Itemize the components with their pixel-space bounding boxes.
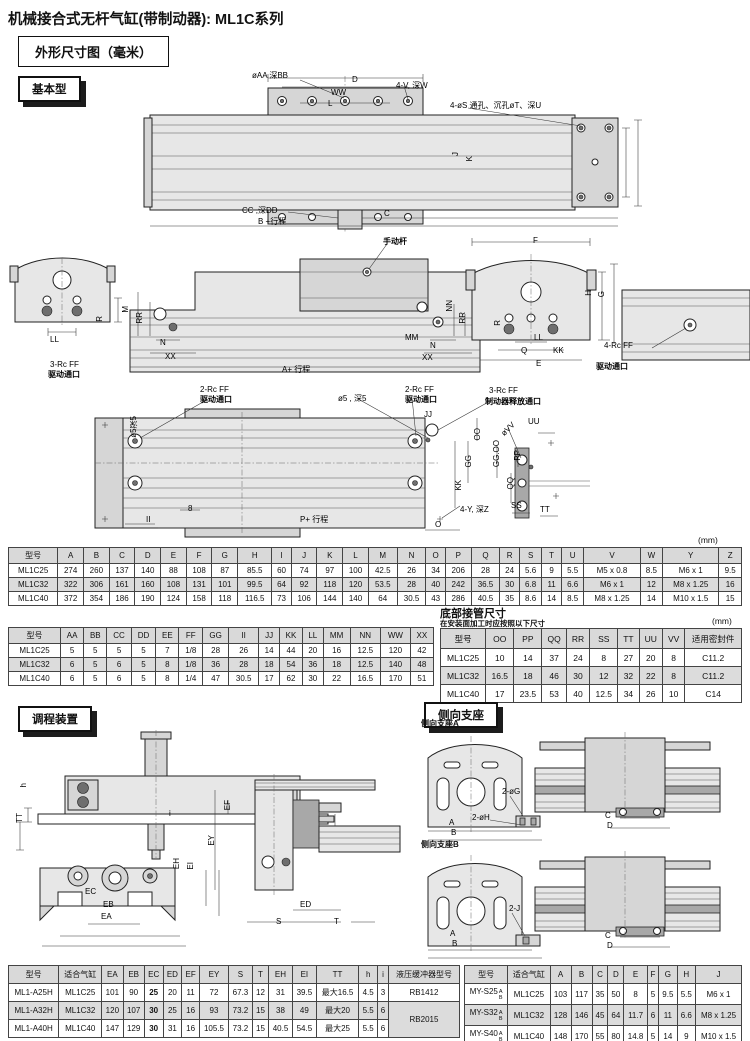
side-support-dimensions-table: 型号适合气缸ABCDEFGHJMY-S25ABML1C2510311735508…	[464, 965, 742, 1041]
dim-label-ssa-d: D	[607, 822, 613, 830]
table-cell: 14	[514, 649, 542, 667]
dim-label-aa-bb: øAA 深BB	[252, 72, 288, 80]
column-header: D	[135, 548, 161, 564]
column-header: EB	[123, 966, 144, 984]
table-cell: M8 x 1.25	[663, 578, 719, 592]
table-cell: 51	[410, 672, 433, 686]
table-cell: C11.2	[685, 649, 742, 667]
table-cell: 108	[186, 564, 212, 578]
table-cell: 10	[662, 685, 684, 703]
table-cell: M8 x 1.25	[696, 1005, 742, 1026]
table-cell: ML1-A25H	[9, 984, 59, 1002]
header-row: 型号AABBCCDDEEFFGGIIJJKKLLMMNNWWXX	[9, 628, 434, 644]
dim-label-jj: JJ	[424, 411, 432, 419]
table-cell: 16	[182, 1020, 200, 1038]
table-cell: 186	[109, 592, 135, 606]
table-cell: 40	[566, 685, 589, 703]
table-cell: 16	[182, 1002, 200, 1020]
table-cell: 322	[58, 578, 84, 592]
table-cell: 5.5	[359, 1020, 378, 1038]
port-label-4rc: 4-Rc FF	[604, 342, 633, 350]
column-header: E	[161, 548, 187, 564]
table-cell: 14	[659, 1026, 677, 1041]
dim-label-rr-left: RR	[136, 312, 144, 324]
column-header: FF	[179, 628, 203, 644]
table-cell: 24	[500, 564, 519, 578]
dim-label-v-w: 4-V, 深W	[396, 82, 428, 90]
table-cell: 17	[486, 685, 514, 703]
table-cell: 74	[291, 564, 317, 578]
table-row: ML1C3216.51846301232228C11.2	[441, 667, 742, 685]
table-cell: 45	[592, 1005, 608, 1026]
table-cell: ML1C32	[9, 658, 61, 672]
table-cell: ML1-A40H	[9, 1020, 59, 1038]
table-cell: 46	[542, 667, 566, 685]
table-cell: ML1C25	[9, 644, 61, 658]
column-header: T	[252, 966, 268, 984]
dim-label-l: L	[328, 100, 332, 108]
dim-label-g: G	[598, 291, 606, 297]
column-header: SS	[590, 629, 618, 649]
table-cell: ML1C32	[59, 1002, 102, 1020]
table-cell: MY-S32AB	[465, 1005, 508, 1026]
catalog-page: 机械接合式无杆气缸(带制动器): ML1C系列 外形尺寸图（毫米） 基本型	[0, 0, 750, 1041]
dim-label-s-t-u: 4-øS 通孔、沉孔øT、深U	[450, 102, 541, 110]
dim-label-r-left: R	[96, 316, 104, 322]
table-cell: 88	[161, 564, 187, 578]
column-header: 型号	[441, 629, 486, 649]
side-support-drawing	[420, 728, 750, 960]
table-cell: 87	[212, 564, 238, 578]
basic-type-plan-view-drawing	[140, 68, 710, 238]
table-cell: 6	[107, 658, 131, 672]
dim-label-ec: EC	[85, 888, 96, 896]
column-header: OO	[486, 629, 514, 649]
dim-label-n-mid: N	[430, 342, 436, 350]
dim-label-2og: 2-øG	[502, 788, 520, 796]
table-cell: ML1C40	[9, 672, 61, 686]
table-cell: 12	[252, 984, 268, 1002]
table-cell: 16.5	[350, 672, 380, 686]
table-cell: 117	[571, 984, 592, 1005]
dim-label-2j: 2-J	[509, 905, 520, 913]
table-cell: 30	[144, 1002, 163, 1020]
table-cell: 99.5	[238, 578, 272, 592]
table-row: ML1-A25HML1C25101902520117267.3123139.5最…	[9, 984, 460, 1002]
table-row: ML1C40372354186190124158118116.573106144…	[9, 592, 742, 606]
column-header: C	[109, 548, 135, 564]
table-cell: 31	[163, 1020, 182, 1038]
header-row: 型号OOPPQQRRSSTTUUVV适用密封件	[441, 629, 742, 649]
table-cell: 5	[647, 984, 658, 1005]
column-header: W	[640, 548, 663, 564]
table-cell: 42.5	[368, 564, 397, 578]
table-cell: ML1C25	[441, 649, 486, 667]
table-cell: 120	[381, 644, 411, 658]
table-cell: ML1C32	[9, 578, 58, 592]
dim-label-adj-h: h	[20, 783, 28, 787]
column-header: EF	[182, 966, 200, 984]
table-cell: 137	[109, 564, 135, 578]
table-cell: 5	[84, 644, 107, 658]
table-cell: MY-S40AB	[465, 1026, 508, 1041]
dim-label-ei: EI	[187, 862, 195, 870]
column-header: 型号	[9, 966, 59, 984]
table-cell: 9.5	[659, 984, 677, 1005]
table-cell: 36	[303, 658, 324, 672]
column-header: PP	[514, 629, 542, 649]
header-row: 型号ABCDEFGHIJKLMNOPQRSTUVWYZ	[9, 548, 742, 564]
table-cell: 90	[123, 984, 144, 1002]
table-cell: M8 x 1.25	[584, 592, 640, 606]
header-row: 型号适合气缸ABCDEFGHJ	[465, 966, 742, 984]
table-cell: 64	[368, 592, 397, 606]
table-cell: 26	[228, 644, 258, 658]
column-header: A	[550, 966, 571, 984]
table-cell: 170	[571, 1026, 592, 1041]
table-cell: 17	[259, 672, 280, 686]
dim-label-ef: EF	[224, 800, 232, 810]
table-cell: 22	[323, 672, 350, 686]
tab-stroke-adjuster: 调程装置	[18, 706, 92, 732]
table-cell: 39.5	[292, 984, 316, 1002]
table-cell: M6 x 1	[696, 984, 742, 1005]
column-header: B	[571, 966, 592, 984]
table-cell: 6.6	[677, 1005, 695, 1026]
table-cell: ML1C25	[508, 984, 550, 1005]
table-cell: 28	[203, 644, 229, 658]
table-cell: 161	[109, 578, 135, 592]
dim-label-h: H	[585, 290, 593, 296]
table-cell: 5	[131, 658, 155, 672]
side-support-b-section	[428, 855, 542, 958]
basic-dimensions-table: 型号ABCDEFGHIJKLMNOPQRSTUVWYZML1C252742601…	[8, 547, 742, 606]
column-header: QQ	[542, 629, 566, 649]
table-cell: 30	[303, 672, 324, 686]
table-cell: 8	[662, 667, 684, 685]
dim-label-gg: GG	[465, 455, 473, 467]
column-header: TT	[316, 966, 358, 984]
table-cell: 158	[186, 592, 212, 606]
column-header: 适合气缸	[59, 966, 102, 984]
table-cell: 131	[186, 578, 212, 592]
column-header: E	[624, 966, 648, 984]
page-title: 机械接合式无杆气缸(带制动器): ML1C系列	[8, 8, 284, 29]
table-cell: 12	[640, 578, 663, 592]
port-label-2rc-right: 2-Rc FF	[405, 386, 434, 394]
dim-label-ssa-a: A	[449, 819, 454, 827]
table-cell: M6 x 1	[663, 564, 719, 578]
column-header: F	[186, 548, 212, 564]
table-row: ML1C25274260137140881088785.560749710042…	[9, 564, 742, 578]
column-header: B	[84, 548, 110, 564]
table-cell: 34	[618, 685, 639, 703]
column-header: I	[272, 548, 291, 564]
table-cell: 64	[272, 578, 291, 592]
table-cell: 40.5	[471, 592, 500, 606]
table-cell: 146	[571, 1005, 592, 1026]
column-header: JJ	[259, 628, 280, 644]
table-row: ML1C40656581/44730.51762302216.517051	[9, 672, 434, 686]
dim-label-mm: MM	[405, 334, 418, 342]
table-row: ML1C2510143724827208C11.2	[441, 649, 742, 667]
column-header: U	[561, 548, 584, 564]
table-cell: 40	[426, 578, 445, 592]
column-header: KK	[279, 628, 302, 644]
dim-label-rr-mid: RR	[459, 312, 467, 324]
table-cell: 54.5	[292, 1020, 316, 1038]
table-cell: 5.5	[677, 984, 695, 1005]
table-cell: 16.5	[486, 667, 514, 685]
dim-label-ssa-c: C	[605, 812, 611, 820]
table-row: MY-S32ABML1C32128146456411.76116.6M8 x 1…	[465, 1005, 742, 1026]
table-cell: 27	[618, 649, 639, 667]
table-cell: 16	[323, 644, 350, 658]
table-cell: ML1C32	[508, 1005, 550, 1026]
column-header: VV	[662, 629, 684, 649]
table-cell: ML1C40	[9, 592, 58, 606]
table-cell: 72	[199, 984, 228, 1002]
table-cell: 18	[259, 658, 280, 672]
table-cell: 20	[163, 984, 182, 1002]
column-header: S	[229, 966, 253, 984]
dim-label-f: F	[533, 237, 538, 245]
table-cell: 14	[640, 592, 663, 606]
table-cell: 15	[252, 1002, 268, 1020]
table-cell: 100	[343, 564, 369, 578]
column-header: ED	[163, 966, 182, 984]
table-cell: 170	[381, 672, 411, 686]
table-cell: 242	[445, 578, 471, 592]
table-cell: 43	[426, 592, 445, 606]
table-cell: 6	[378, 1020, 389, 1038]
column-header: H	[238, 548, 272, 564]
table-cell: 260	[84, 564, 110, 578]
table-cell: 42	[410, 644, 433, 658]
dim-label-nn: NN	[446, 300, 454, 312]
dim-label-e: E	[536, 360, 541, 368]
column-header: i	[378, 966, 389, 984]
dim-label-o: O	[435, 521, 441, 529]
table-row: ML1C401723.5534012.5342610C14	[441, 685, 742, 703]
table-cell: 67.3	[229, 984, 253, 1002]
dim-label-tt: TT	[540, 506, 550, 514]
table-cell: 8.5	[640, 564, 663, 578]
side-support-a-plan	[535, 732, 720, 828]
table-cell: 140	[381, 658, 411, 672]
table-cell: 14.8	[624, 1026, 648, 1041]
table-cell: 6	[647, 1005, 658, 1026]
table-cell: 64	[608, 1005, 624, 1026]
table-cell: 8	[590, 649, 618, 667]
dim-label-eh: EH	[173, 858, 181, 869]
unit-label-main: (mm)	[698, 535, 718, 545]
dim-label-r-mid: R	[494, 320, 502, 326]
table-cell: 28	[397, 578, 426, 592]
table-cell: 8	[662, 649, 684, 667]
column-header: N	[397, 548, 426, 564]
table-cell: 5	[647, 1026, 658, 1041]
table-cell: 5	[131, 672, 155, 686]
table-cell: 1/8	[179, 658, 203, 672]
table-row: ML1C25555571/828261444201612.512042	[9, 644, 434, 658]
table-cell: 6	[61, 672, 84, 686]
dim-label-cc-dd: CC ,深DD	[242, 207, 278, 215]
table-cell: 5	[84, 672, 107, 686]
table-cell: ML1C40	[508, 1026, 550, 1041]
dim-label-c: C	[384, 210, 390, 218]
column-header: UU	[639, 629, 662, 649]
table-cell: M5 x 0.8	[584, 564, 640, 578]
table-cell: 30	[500, 578, 519, 592]
column-header: 液压缓冲器型号	[389, 966, 460, 984]
table-cell: 44	[279, 644, 302, 658]
table-cell: 11	[659, 1005, 677, 1026]
table-cell: M10 x 1.5	[696, 1026, 742, 1041]
dim-label-adj-tt: TT	[16, 813, 24, 823]
table-cell: 30	[144, 1020, 163, 1038]
column-header: K	[317, 548, 343, 564]
table-cell: ML1C25	[9, 564, 58, 578]
table-cell: 1/8	[179, 644, 203, 658]
table-row: ML1C3232230616116010813110199.5649211812…	[9, 578, 742, 592]
table-cell: 55	[592, 1026, 608, 1041]
table-cell: 8.6	[519, 592, 542, 606]
dim-label-q: Q	[521, 347, 527, 355]
table-row: ML1-A32HML1C321201073025169373.2153849最大…	[9, 1002, 460, 1020]
table-cell: 5	[61, 644, 84, 658]
table-cell: 36.5	[471, 578, 500, 592]
bottom-piping-table: 型号OOPPQQRRSSTTUUVV适用密封件ML1C2510143724827…	[440, 628, 742, 703]
table-cell: 12.5	[350, 658, 380, 672]
column-header: NN	[350, 628, 380, 644]
table-cell: 120	[343, 578, 369, 592]
column-header: L	[343, 548, 369, 564]
table-row: MY-S25ABML1C251031173550859.55.5M6 x 1	[465, 984, 742, 1005]
dim-label-adj-s: S	[276, 918, 281, 926]
bottom-view-body	[95, 398, 492, 537]
table-cell: 6	[107, 672, 131, 686]
table-cell: 15	[719, 592, 742, 606]
port-label-2rc-left: 2-Rc FF	[200, 386, 229, 394]
table-cell: 34	[426, 564, 445, 578]
column-header: J	[696, 966, 742, 984]
column-header: V	[584, 548, 640, 564]
dim-label-y-z: 4-Y, 深Z	[460, 506, 489, 514]
table-cell: 9	[542, 564, 561, 578]
column-header: 适用密封件	[685, 629, 742, 649]
column-header: Z	[719, 548, 742, 564]
port-label-3rc: 3-Rc FF	[50, 361, 79, 369]
dim-label-qq: QQ	[507, 477, 515, 489]
table-cell: 48	[410, 658, 433, 672]
port-label-3rc-brake: 3-Rc FF	[489, 387, 518, 395]
column-header: EI	[292, 966, 316, 984]
table-cell: 23.5	[514, 685, 542, 703]
left-end-view	[10, 258, 122, 336]
column-header: EY	[199, 966, 228, 984]
dim-label-uu: UU	[528, 418, 540, 426]
dim-label-k: K	[466, 156, 474, 161]
column-header: A	[58, 548, 84, 564]
table-cell: 97	[317, 564, 343, 578]
table-cell: 12.5	[350, 644, 380, 658]
column-header: 型号	[465, 966, 508, 984]
table-cell: 24	[566, 649, 589, 667]
dim-label-ssb-b: B	[452, 940, 457, 948]
table-cell: 50	[608, 984, 624, 1005]
table-cell: 12	[590, 667, 618, 685]
column-header: WW	[381, 628, 411, 644]
table-cell: 116.5	[238, 592, 272, 606]
table-cell: 190	[135, 592, 161, 606]
table-cell: 129	[123, 1020, 144, 1038]
table-cell: 8.5	[561, 592, 584, 606]
dim-label-p-stroke: P+ 行程	[300, 516, 328, 524]
table-cell: 93	[199, 1002, 228, 1020]
dim-label-adj-t: T	[334, 918, 339, 926]
dim-label-eb: EB	[103, 901, 114, 909]
dim-label-ey: EY	[208, 835, 216, 846]
table-cell: 47	[203, 672, 229, 686]
table-cell: 26	[639, 685, 662, 703]
table-cell: 354	[84, 592, 110, 606]
table-cell: 80	[608, 1026, 624, 1041]
table-cell: 26	[397, 564, 426, 578]
table-cell: 22	[639, 667, 662, 685]
table-cell: ML1-A32H	[9, 1002, 59, 1020]
column-header: M	[368, 548, 397, 564]
column-header: CC	[107, 628, 131, 644]
table-cell: 最大25	[316, 1020, 358, 1038]
dim-label-ll-mid: LL	[534, 334, 543, 342]
table-cell: 120	[102, 1002, 123, 1020]
table-cell: 30.5	[397, 592, 426, 606]
body-section-far-right	[622, 290, 750, 360]
table-cell: 36	[203, 658, 229, 672]
column-header: G	[659, 966, 677, 984]
dim-label-ii: II	[146, 516, 150, 524]
table-cell: 286	[445, 592, 471, 606]
column-header: F	[647, 966, 658, 984]
dim-label-b-stroke: B +行程	[258, 218, 286, 226]
table-row: ML1C32656581/836281854361812.514048	[9, 658, 434, 672]
table-cell: 105.5	[199, 1020, 228, 1038]
table-cell: 107	[123, 1002, 144, 1020]
dim-label-ea: EA	[101, 913, 112, 921]
dim-label-j: J	[452, 152, 460, 156]
table-cell: 73.2	[229, 1002, 253, 1020]
table-cell: 28	[471, 564, 500, 578]
table-cell: 101	[102, 984, 123, 1002]
column-header: C	[592, 966, 608, 984]
table-row: MY-S40ABML1C40148170558014.85149M10 x 1.…	[465, 1026, 742, 1041]
table-cell: 6	[61, 658, 84, 672]
table-cell: 118	[317, 578, 343, 592]
dim-label-d: D	[352, 76, 358, 84]
table-cell: ML1C32	[441, 667, 486, 685]
dim-label-ssb-a: A	[450, 930, 455, 938]
column-header: DD	[131, 628, 155, 644]
table-cell: 101	[212, 578, 238, 592]
table-cell: 5	[84, 658, 107, 672]
dim-label-xx-left: XX	[165, 353, 176, 361]
column-header: h	[359, 966, 378, 984]
unit-label-piping: (mm)	[712, 616, 732, 626]
table-cell: 最大16.5	[316, 984, 358, 1002]
table-cell: 6.8	[519, 578, 542, 592]
table-cell: M6 x 1	[584, 578, 640, 592]
